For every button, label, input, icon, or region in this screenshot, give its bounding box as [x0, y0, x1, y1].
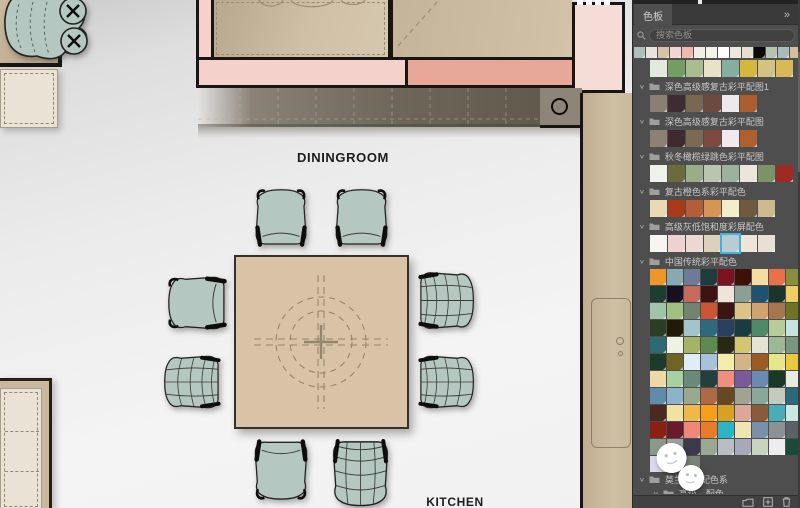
swatch[interactable] [776, 165, 793, 182]
swatch[interactable] [650, 235, 667, 252]
swatch[interactable] [778, 47, 789, 58]
swatch[interactable] [650, 320, 666, 336]
window-tick [595, 0, 601, 5]
swatch-grid-row [650, 371, 800, 387]
swatch-group-row [650, 165, 800, 182]
swatch[interactable] [752, 388, 768, 404]
panel-content: ∨深色高级感复古彩平配图1∨深色高级感复古彩平配图∨秋冬橄榄绿跳色彩平配图∨复古… [633, 44, 800, 494]
swatch[interactable] [766, 47, 777, 58]
swatch[interactable] [684, 337, 700, 353]
dining-chair[interactable] [165, 271, 229, 335]
dining-chair[interactable] [330, 186, 393, 249]
swatch[interactable] [650, 388, 666, 404]
swatch[interactable] [752, 320, 768, 336]
swatch-group-row [650, 60, 800, 77]
swatch[interactable] [735, 303, 751, 319]
table-center-symbol [236, 257, 407, 427]
swatch[interactable] [722, 60, 739, 77]
swatch[interactable] [701, 269, 717, 285]
swatch[interactable] [704, 60, 721, 77]
swatch[interactable] [722, 200, 739, 217]
swatch[interactable] [704, 95, 721, 112]
lounge-chair[interactable] [3, 0, 95, 64]
window-tick [577, 0, 583, 5]
swatch[interactable] [684, 371, 700, 387]
cabinet-divider [5, 471, 39, 472]
chevron-down-icon[interactable]: ∨ [639, 83, 645, 90]
collapse-panel-icon[interactable]: » [784, 9, 788, 21]
panel-tab-bar: 色板 » [633, 0, 800, 25]
document-tab-tick [698, 0, 702, 4]
swatch[interactable] [704, 235, 721, 252]
swatch-search-input[interactable]: 搜索色板 [649, 29, 795, 42]
swatch[interactable] [752, 337, 768, 353]
swatch-group-row [650, 200, 800, 217]
swatch[interactable] [786, 337, 800, 353]
room-corner-pink[interactable] [572, 2, 625, 93]
swatch[interactable] [706, 47, 717, 58]
swatch[interactable] [686, 95, 703, 112]
swatch[interactable] [667, 286, 683, 302]
swatch[interactable] [701, 388, 717, 404]
swatch[interactable] [786, 320, 800, 336]
kitchen-counter[interactable] [198, 88, 582, 127]
swatch[interactable] [718, 354, 734, 370]
search-placeholder: 搜索色板 [656, 31, 692, 40]
swatch[interactable] [730, 47, 741, 58]
swatch[interactable] [740, 165, 757, 182]
swatch[interactable] [752, 405, 768, 421]
swatch[interactable] [650, 269, 666, 285]
sink-outline [591, 298, 631, 448]
swatch[interactable] [684, 354, 700, 370]
bedroom-floor[interactable] [213, 0, 388, 57]
swatch[interactable] [670, 47, 681, 58]
cabinet-divider [5, 431, 39, 432]
swatch[interactable] [769, 388, 785, 404]
app-window: DININGROOM KITCHEN 色板 » 搜索色板 ∨深色高级感复古彩平配… [0, 0, 800, 508]
swatch[interactable] [701, 286, 717, 302]
swatch[interactable] [722, 165, 739, 182]
window-tick [604, 0, 610, 5]
swatch-grid-row [650, 320, 800, 336]
swatch[interactable] [668, 130, 685, 147]
kitchen-wall-strip[interactable] [580, 93, 632, 508]
folder-icon [649, 152, 660, 161]
swatch[interactable] [667, 269, 683, 285]
folder-icon [649, 222, 660, 231]
swatch[interactable] [650, 60, 667, 77]
swatch[interactable] [650, 95, 667, 112]
group-label: 中国传统彩平配色 [665, 255, 737, 268]
group-label: 高级灰低饱和度彩屏配色 [665, 220, 764, 233]
swatch[interactable] [650, 303, 666, 319]
swatch[interactable] [752, 269, 768, 285]
swatch[interactable] [752, 354, 768, 370]
swatch[interactable] [667, 337, 683, 353]
swatch[interactable] [718, 422, 734, 438]
swatch-group-row [650, 130, 800, 147]
chevron-down-icon[interactable]: ∨ [639, 188, 645, 195]
swatch-group-row [650, 95, 800, 112]
chevron-down-icon[interactable]: ∨ [639, 153, 645, 160]
swatch[interactable] [752, 303, 768, 319]
swatch[interactable] [786, 303, 800, 319]
swatch[interactable] [650, 165, 667, 182]
swatch[interactable] [718, 303, 734, 319]
swatch[interactable] [786, 388, 800, 404]
swatch[interactable] [650, 337, 666, 353]
swatch[interactable] [718, 371, 734, 387]
group-label: 复古橙色系彩平配色 [665, 185, 746, 198]
swatch[interactable] [668, 235, 685, 252]
swatch[interactable] [667, 388, 683, 404]
swatch[interactable] [650, 354, 666, 370]
swatch[interactable] [650, 130, 667, 147]
swatch[interactable] [718, 337, 734, 353]
swatch[interactable] [786, 354, 800, 370]
swatch[interactable] [752, 371, 768, 387]
swatch[interactable] [735, 286, 751, 302]
new-group-button[interactable] [742, 498, 754, 507]
swatch[interactable] [718, 47, 729, 58]
swatch[interactable] [769, 303, 785, 319]
swatch[interactable] [758, 235, 775, 252]
swatch[interactable] [684, 269, 700, 285]
swatch-group-header[interactable]: ∨复古橙色系彩平配色 [633, 185, 800, 198]
swatch[interactable] [684, 388, 700, 404]
swatch[interactable] [667, 371, 683, 387]
counter-grid-lines [198, 88, 582, 127]
swatch[interactable] [684, 405, 700, 421]
dining-chair[interactable] [416, 266, 477, 335]
tab-swatches[interactable]: 色板 [634, 4, 672, 28]
swatch[interactable] [718, 388, 734, 404]
folder-icon [649, 187, 660, 196]
chevron-down-icon[interactable]: ∨ [639, 223, 645, 230]
new-swatch-button[interactable] [763, 497, 773, 507]
swatch[interactable] [650, 371, 666, 387]
swatch[interactable] [722, 95, 739, 112]
panel-bottom-bar [633, 495, 798, 508]
rug-cabinet-top-left[interactable] [0, 69, 58, 128]
swatch[interactable] [667, 422, 683, 438]
swatch[interactable] [684, 286, 700, 302]
swatch[interactable] [686, 235, 703, 252]
counter-shadow [198, 124, 582, 138]
swatch[interactable] [786, 422, 800, 438]
swatch-grid-row [650, 303, 800, 319]
bed-outline [213, 0, 388, 12]
swatch[interactable] [718, 286, 734, 302]
swatch[interactable] [682, 47, 693, 58]
swatch[interactable] [701, 405, 717, 421]
swatch[interactable] [668, 165, 685, 182]
swatch-grid-row [650, 354, 800, 370]
swatch[interactable] [684, 422, 700, 438]
swatch[interactable] [686, 60, 703, 77]
delete-swatch-button[interactable] [782, 497, 791, 507]
swatch[interactable] [786, 269, 800, 285]
counter-corner[interactable] [540, 88, 582, 128]
swatch[interactable] [735, 371, 751, 387]
window-tick [586, 0, 592, 5]
swatch[interactable] [701, 371, 717, 387]
swatch[interactable] [735, 388, 751, 404]
swatch[interactable] [769, 422, 785, 438]
swatch-grid-row [650, 405, 800, 421]
group-label: 秋冬橄榄绿跳色彩平配图 [665, 150, 764, 163]
swatch[interactable] [646, 47, 657, 58]
swatch[interactable] [658, 47, 669, 58]
swatch[interactable] [667, 303, 683, 319]
swatch[interactable] [769, 405, 785, 421]
swatch[interactable] [786, 371, 800, 387]
swatch[interactable] [686, 165, 703, 182]
wechat-watermark [644, 441, 724, 501]
swatch[interactable] [740, 60, 757, 77]
swatch[interactable] [740, 235, 757, 252]
swatch[interactable] [740, 200, 757, 217]
swatch-grid-row [650, 286, 800, 302]
swatch[interactable] [735, 337, 751, 353]
dining-table[interactable] [234, 255, 409, 429]
dining-chair[interactable] [249, 437, 313, 503]
swatch-group-header[interactable]: ∨深色高级感复古彩平配图1 [633, 80, 800, 93]
swatch[interactable] [668, 60, 685, 77]
swatch[interactable] [686, 200, 703, 217]
room-label-kitchen: KITCHEN [415, 495, 495, 508]
dining-chair[interactable] [327, 436, 394, 508]
swatch[interactable] [740, 95, 757, 112]
folder-icon [649, 257, 660, 266]
swatch[interactable] [704, 165, 721, 182]
swatch-group-header[interactable]: ∨中国传统彩平配色 [633, 255, 800, 268]
swatch[interactable] [758, 60, 775, 77]
dining-chair[interactable] [161, 350, 223, 414]
swatch[interactable] [667, 320, 683, 336]
swatch[interactable] [740, 130, 757, 147]
swatch[interactable] [704, 130, 721, 147]
swatch[interactable] [684, 320, 700, 336]
swatch-grid-row [650, 269, 800, 285]
swatch[interactable] [722, 130, 739, 147]
swatch[interactable] [752, 422, 768, 438]
swatch-group-row [650, 235, 800, 252]
swatch[interactable] [735, 439, 751, 455]
cabinet-bottom-left[interactable] [0, 378, 52, 508]
swatch[interactable] [634, 47, 645, 58]
swatch[interactable] [735, 354, 751, 370]
swatch[interactable] [758, 165, 775, 182]
swatch[interactable] [722, 235, 739, 252]
swatch[interactable] [742, 47, 753, 58]
swatch[interactable] [776, 60, 793, 77]
swatch[interactable] [701, 337, 717, 353]
cabinet-interior [0, 388, 42, 508]
swatch-group-header[interactable]: ∨秋冬橄榄绿跳色彩平配图 [633, 150, 800, 163]
swatch[interactable] [752, 286, 768, 302]
swatch[interactable] [650, 200, 667, 217]
group-label: 深色高级感复古彩平配图1 [665, 80, 769, 93]
column-circle-symbol [551, 98, 568, 115]
room-label-diningroom: DININGROOM [268, 150, 418, 165]
dining-chair[interactable] [250, 186, 312, 249]
swatch[interactable] [769, 320, 785, 336]
swatch[interactable] [769, 286, 785, 302]
swatch-group-header[interactable]: ∨高级灰低饱和度彩屏配色 [633, 220, 800, 233]
swatch[interactable] [718, 320, 734, 336]
swatch[interactable] [769, 371, 785, 387]
swatch[interactable] [704, 200, 721, 217]
swatch[interactable] [701, 354, 717, 370]
search-icon [637, 31, 646, 40]
swatch-grid-row [650, 388, 800, 404]
swatch[interactable] [735, 320, 751, 336]
swatch[interactable] [701, 422, 717, 438]
swatch[interactable] [735, 269, 751, 285]
door-swing-line [395, 0, 455, 50]
room-top-right[interactable] [393, 0, 572, 57]
swatch[interactable] [769, 269, 785, 285]
swatch[interactable] [701, 303, 717, 319]
swatch[interactable] [735, 405, 751, 421]
swatch[interactable] [684, 303, 700, 319]
swatch[interactable] [650, 286, 666, 302]
swatch[interactable] [694, 47, 705, 58]
swatch[interactable] [769, 337, 785, 353]
swatch[interactable] [786, 405, 800, 421]
swatch-group-header[interactable]: ∨深色高级感复古彩平配图 [633, 115, 800, 128]
swatch[interactable] [668, 95, 685, 112]
swatch[interactable] [769, 354, 785, 370]
chevron-down-icon[interactable]: ∨ [639, 118, 645, 125]
swatch[interactable] [667, 405, 683, 421]
swatch[interactable] [667, 354, 683, 370]
swatch[interactable] [650, 422, 666, 438]
swatch[interactable] [701, 320, 717, 336]
swatch[interactable] [718, 269, 734, 285]
dining-chair[interactable] [416, 350, 477, 414]
group-label: 深色高级感复古彩平配图 [665, 115, 764, 128]
swatch[interactable] [769, 439, 785, 455]
recent-swatches-row [634, 47, 800, 58]
wall-band-pink[interactable] [196, 57, 410, 88]
swatches-panel: 色板 » 搜索色板 ∨深色高级感复古彩平配图1∨深色高级感复古彩平配图∨秋冬橄榄… [632, 0, 800, 508]
swatch[interactable] [754, 47, 765, 58]
wall-band-pink-vertical[interactable] [196, 0, 214, 60]
swatch-grid-row [650, 422, 800, 438]
swatch[interactable] [752, 439, 768, 455]
swatch[interactable] [686, 130, 703, 147]
swatch[interactable] [735, 422, 751, 438]
document-canvas[interactable]: DININGROOM KITCHEN [0, 0, 632, 508]
folder-icon [649, 82, 660, 91]
chevron-down-icon[interactable]: ∨ [639, 258, 645, 265]
swatch[interactable] [786, 286, 800, 302]
swatch[interactable] [668, 200, 685, 217]
swatch[interactable] [758, 200, 775, 217]
swatch[interactable] [650, 405, 666, 421]
swatch-grid-row [650, 337, 800, 353]
swatch[interactable] [786, 439, 800, 455]
folder-icon [649, 117, 660, 126]
swatch[interactable] [718, 405, 734, 421]
